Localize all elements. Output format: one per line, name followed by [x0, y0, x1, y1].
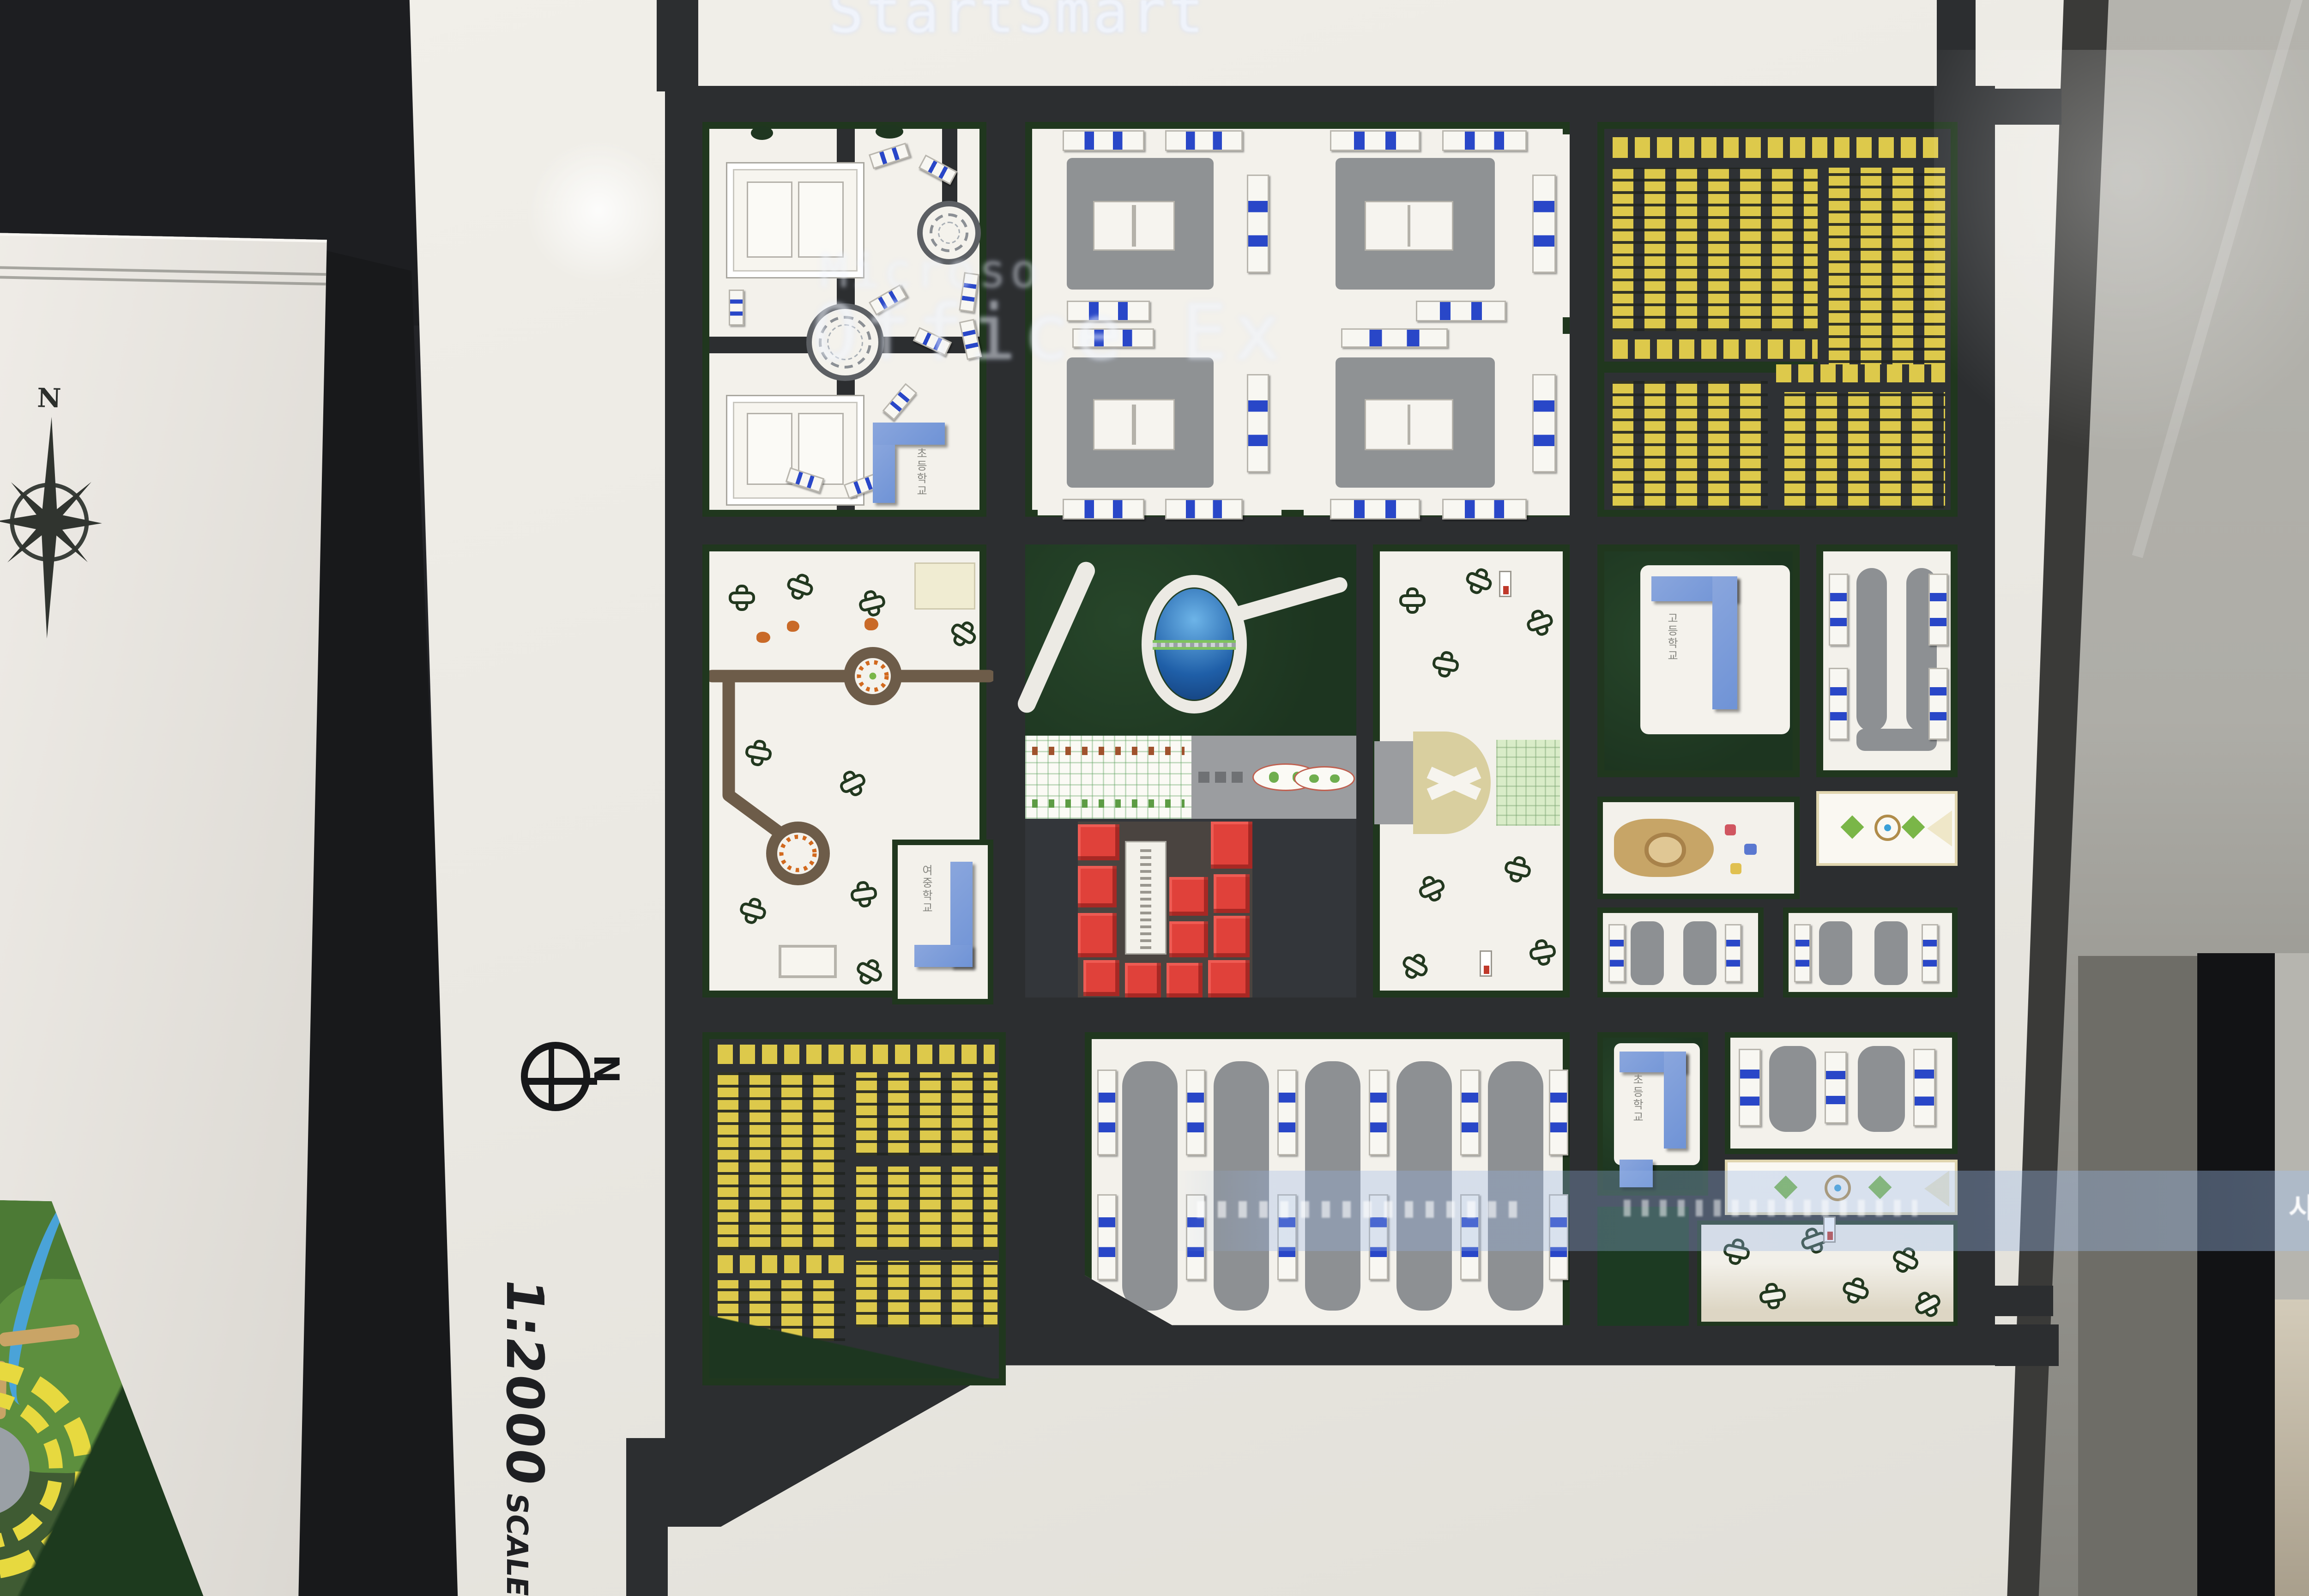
red-building	[1125, 963, 1161, 997]
projector-glow	[1934, 50, 2309, 479]
hedge	[751, 126, 773, 140]
forest	[1025, 544, 1356, 736]
tree	[1914, 1290, 1942, 1318]
paver	[1215, 772, 1226, 783]
school-building	[873, 423, 945, 445]
compass-rose: N	[0, 382, 105, 648]
apartment-quadrant	[1304, 134, 1570, 317]
building-slab	[1369, 1070, 1388, 1155]
projected-caption-text: 시발표	[2289, 1186, 2309, 1226]
paved-strip	[1122, 1061, 1178, 1311]
rowhouse-strips	[1613, 168, 1818, 331]
building-slab	[1247, 374, 1269, 472]
tree	[1530, 940, 1554, 964]
photo-scene: N	[0, 0, 2309, 1596]
paved-court	[1858, 1046, 1905, 1132]
central-tower-plan	[1125, 841, 1167, 955]
tree	[1843, 1277, 1869, 1304]
compass-star-icon	[0, 413, 104, 648]
tree	[1761, 1284, 1784, 1308]
green-diamond	[1902, 816, 1925, 839]
plaza-triangle	[1927, 810, 1952, 846]
block-tree-plaza	[1373, 544, 1570, 997]
school-label: 초등학교	[1631, 1074, 1646, 1151]
tree	[1527, 610, 1553, 636]
building-slab	[1532, 374, 1556, 472]
projected-title-text: StartSmart	[828, 0, 1207, 46]
rowhouse-band	[718, 1255, 845, 1273]
school-label: 초등학교	[914, 447, 930, 506]
rowhouse-strips	[718, 1072, 845, 1250]
scale-number: 1:2000	[495, 1275, 554, 1490]
center-building	[1365, 399, 1452, 450]
block-park: 여중학교	[702, 544, 986, 997]
road-stub	[626, 1438, 668, 1596]
building-slab	[1829, 574, 1848, 646]
block-east-district: 고등학교	[1597, 544, 1958, 997]
north-symbol-letter: N	[586, 1054, 626, 1083]
paved-court	[1819, 921, 1852, 985]
building-slab	[1913, 1049, 1935, 1126]
median-island	[1294, 766, 1355, 791]
red-building	[1214, 874, 1250, 913]
building-slab	[1277, 1070, 1297, 1155]
red-civic-block	[1078, 822, 1252, 997]
orange-shrub	[864, 618, 878, 630]
building-slab	[1608, 924, 1625, 982]
paved-court	[1683, 921, 1717, 985]
red-building	[1078, 866, 1117, 907]
rowhouse-strips	[1829, 168, 1945, 375]
center-building	[1094, 200, 1174, 252]
sign-post	[1480, 950, 1492, 977]
red-building	[1167, 963, 1203, 997]
center-building	[1365, 200, 1452, 252]
paved-court	[1856, 568, 1887, 731]
right-side-board	[2275, 953, 2309, 1316]
red-building	[1078, 824, 1119, 860]
tree	[1402, 590, 1423, 611]
green-grid-plot	[1496, 740, 1560, 826]
building-slab	[1825, 1052, 1847, 1124]
red-building	[1083, 960, 1119, 996]
building-slab	[1829, 668, 1848, 740]
building-slab	[1097, 1194, 1117, 1280]
apartment-sub-block	[1783, 907, 1958, 997]
playground-sub-block	[1597, 797, 1800, 899]
building-slab	[729, 290, 744, 326]
projected-product-text: Office Ex	[812, 288, 1287, 377]
tree	[852, 883, 876, 906]
left-presentation-board: N	[0, 233, 327, 1596]
school-building	[1712, 576, 1737, 709]
building-slab	[1165, 131, 1243, 151]
rowhouse-band	[1613, 137, 1942, 158]
orange-shrub	[756, 632, 770, 643]
board-pinstripe	[0, 266, 326, 285]
plan-dark-edge	[0, 1199, 218, 1596]
scale-annotation: 1:2000SCALE	[495, 1275, 554, 1596]
building-slab	[1330, 131, 1421, 151]
block-yellow-housing-ne	[1597, 122, 1958, 517]
building-slab	[1062, 499, 1145, 519]
axis-road	[1374, 741, 1413, 824]
building-slab	[1794, 924, 1811, 982]
rowhouse-band	[1776, 364, 1945, 382]
building-slab	[1928, 668, 1948, 740]
paved-court	[1631, 921, 1664, 985]
road-stub	[1995, 1286, 2053, 1316]
red-building	[1214, 916, 1250, 957]
school-building	[914, 945, 973, 967]
paver	[1232, 772, 1243, 783]
lens-flare	[515, 127, 682, 294]
block-yellow-housing-sw	[702, 1032, 1006, 1385]
apartment-sub-block	[1725, 1032, 1958, 1154]
courtyard-building-plan	[726, 395, 864, 506]
hedge	[876, 125, 903, 139]
pond-bridge	[1152, 640, 1236, 650]
paved-court	[1874, 921, 1908, 985]
building-slab	[1442, 131, 1527, 151]
paved-court	[1856, 729, 1937, 751]
playground	[1614, 819, 1714, 877]
tree	[1418, 875, 1445, 902]
building-slab	[1549, 1070, 1568, 1155]
building-slab	[1165, 499, 1243, 519]
red-building	[1208, 960, 1250, 997]
building-slab	[1415, 301, 1506, 321]
tree	[1401, 952, 1429, 980]
floor-wedge	[2275, 1300, 2309, 1596]
rowhouse-strips	[856, 1072, 997, 1155]
school-building	[873, 445, 895, 503]
building-slab	[1341, 328, 1447, 348]
building-slab	[1062, 131, 1145, 151]
school-label: 고등학교	[1665, 612, 1680, 701]
tree	[746, 741, 770, 765]
scale-word: SCALE	[500, 1491, 533, 1596]
tree	[1433, 652, 1457, 676]
forest-path	[1015, 559, 1098, 715]
red-building	[1211, 822, 1252, 869]
red-building	[1078, 913, 1117, 957]
sports-court	[779, 945, 837, 978]
green-edge	[709, 1311, 1013, 1378]
play-equipment	[1725, 824, 1736, 835]
block-central-civic	[1025, 544, 1356, 997]
compass-north-label: N	[0, 382, 99, 415]
building-slab	[882, 383, 917, 421]
wall-shadow-panel	[2078, 956, 2206, 1596]
center-building	[1094, 399, 1174, 450]
building-slab	[1442, 499, 1527, 519]
red-building	[1169, 877, 1208, 916]
school-building	[1664, 1052, 1686, 1149]
green-diamond	[1841, 816, 1864, 839]
diamond-plaza	[1816, 791, 1958, 866]
projected-caption-band	[1172, 1171, 2309, 1251]
rowhouse-strips	[856, 1167, 997, 1250]
building-slab	[1532, 175, 1556, 273]
building-slab	[1330, 499, 1421, 519]
paved-court	[1769, 1046, 1816, 1132]
tree	[1465, 568, 1493, 595]
rowhouse-strips	[1613, 381, 1768, 508]
school-label: 여중학교	[920, 864, 935, 942]
building-slab	[1247, 175, 1269, 273]
pale-building	[914, 562, 975, 610]
forest-path	[1230, 575, 1349, 623]
tree	[731, 587, 752, 608]
rowhouse-band	[1613, 339, 1818, 359]
building-slab	[1725, 924, 1741, 982]
high-school-sub-block: 고등학교	[1597, 544, 1800, 777]
apartment-sub-block	[1816, 544, 1958, 777]
axis-road	[1191, 736, 1356, 819]
road-stub	[657, 0, 698, 91]
road-stub	[1995, 1324, 2059, 1366]
building-slab	[1739, 1049, 1761, 1126]
orange-shrub	[787, 621, 799, 632]
school-sub-block: 여중학교	[892, 840, 993, 1004]
axis-promenade	[1025, 736, 1191, 819]
building-slab	[869, 143, 910, 169]
sign-post	[1499, 571, 1511, 597]
fan-plaza	[1413, 731, 1491, 834]
apartment-quadrant	[1304, 334, 1570, 515]
building-slab	[1922, 924, 1938, 982]
building-slab	[1097, 1070, 1117, 1155]
rowhouse-strips	[1784, 392, 1945, 508]
play-equipment	[1730, 863, 1741, 874]
building-slab	[1928, 574, 1948, 646]
play-equipment	[1744, 844, 1757, 855]
fountain-circle	[1874, 815, 1901, 841]
landscape-plan-graphic	[0, 1199, 218, 1596]
building-slab	[1186, 1070, 1205, 1155]
building-slab	[1460, 1070, 1480, 1155]
dark-gap-between-panels	[2197, 953, 2278, 1596]
red-building	[1169, 921, 1208, 957]
pond	[1155, 589, 1233, 700]
rowhouse-band	[718, 1045, 995, 1064]
apartment-sub-block	[1597, 907, 1764, 997]
north-symbol: N	[521, 1042, 590, 1111]
paver	[1198, 772, 1209, 783]
tree	[1505, 857, 1530, 882]
